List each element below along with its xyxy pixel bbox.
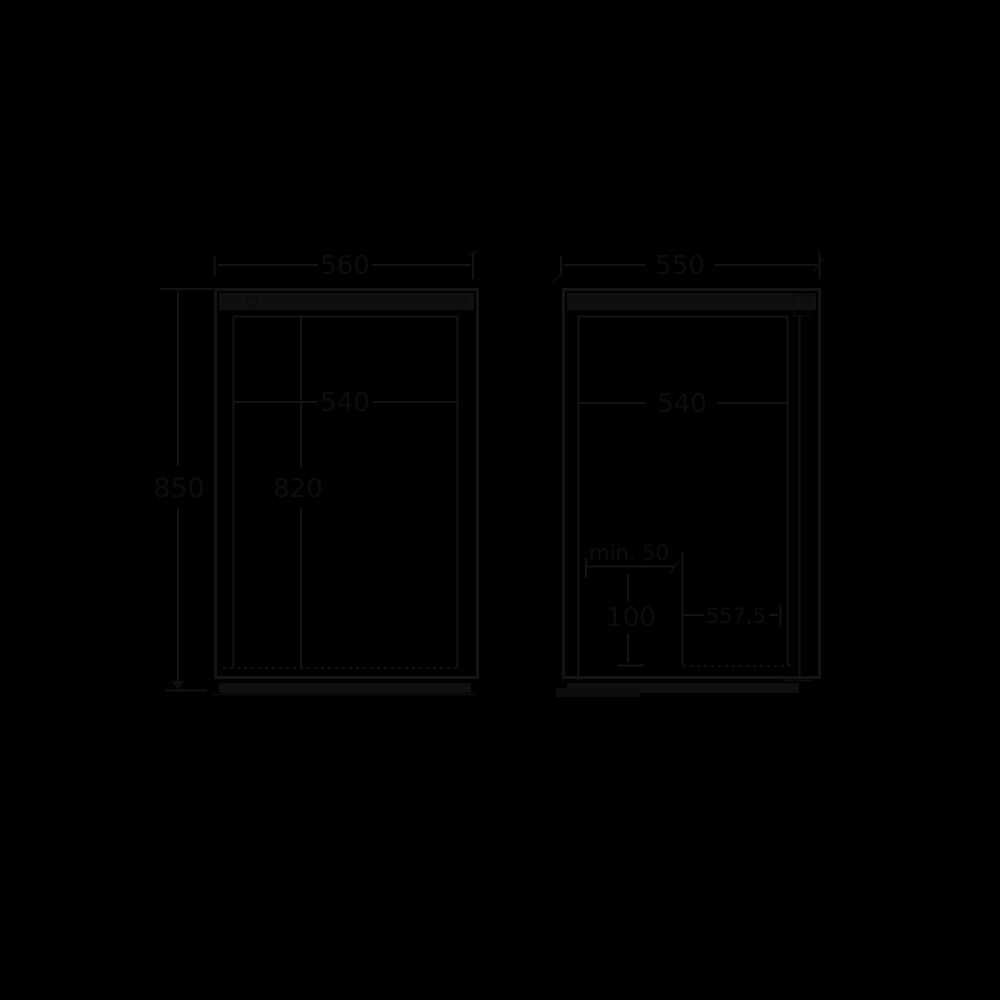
diagram-canvas: 560 850 820 [0, 0, 1000, 1000]
side-door-panel [788, 316, 800, 676]
dim-hook [553, 272, 562, 282]
dimension-diagram: 560 850 820 [0, 0, 1000, 1000]
front-height-label: 850 [153, 473, 205, 504]
side-base-foot [556, 688, 640, 697]
side-plinth-label: 100 [606, 603, 656, 633]
side-plinth-dimension: 100 [606, 574, 656, 666]
side-view: 550 540 min. 50 [553, 251, 823, 697]
side-inner-depth-dimension: 540 [578, 389, 787, 419]
side-inner-depth-label: 540 [657, 389, 707, 419]
dim-arrowhead [172, 681, 184, 690]
front-inner-width-label: 540 [320, 388, 370, 418]
front-width-label: 560 [320, 251, 370, 281]
side-depth-dimension: 550 [553, 251, 823, 282]
front-outline [216, 290, 478, 678]
front-height-dimension: 850 [153, 289, 213, 691]
side-clearance-dimension: min. 50 [586, 541, 679, 578]
front-inner-sides [234, 316, 458, 668]
side-door-depth-dimension: 557,5 [684, 604, 781, 628]
front-view: 560 850 820 [153, 250, 477, 695]
side-clearance-label: min. 50 [589, 541, 669, 565]
front-base-band [219, 683, 471, 693]
side-top-band [567, 293, 816, 310]
front-inner-width-dimension: 540 [233, 388, 457, 418]
front-inner-height-label: 820 [273, 474, 323, 504]
side-depth-label: 550 [655, 251, 705, 281]
front-width-dimension: 560 [215, 250, 478, 281]
front-inner-height-dimension: 820 [273, 317, 323, 667]
side-door-depth-label: 557,5 [706, 604, 766, 628]
